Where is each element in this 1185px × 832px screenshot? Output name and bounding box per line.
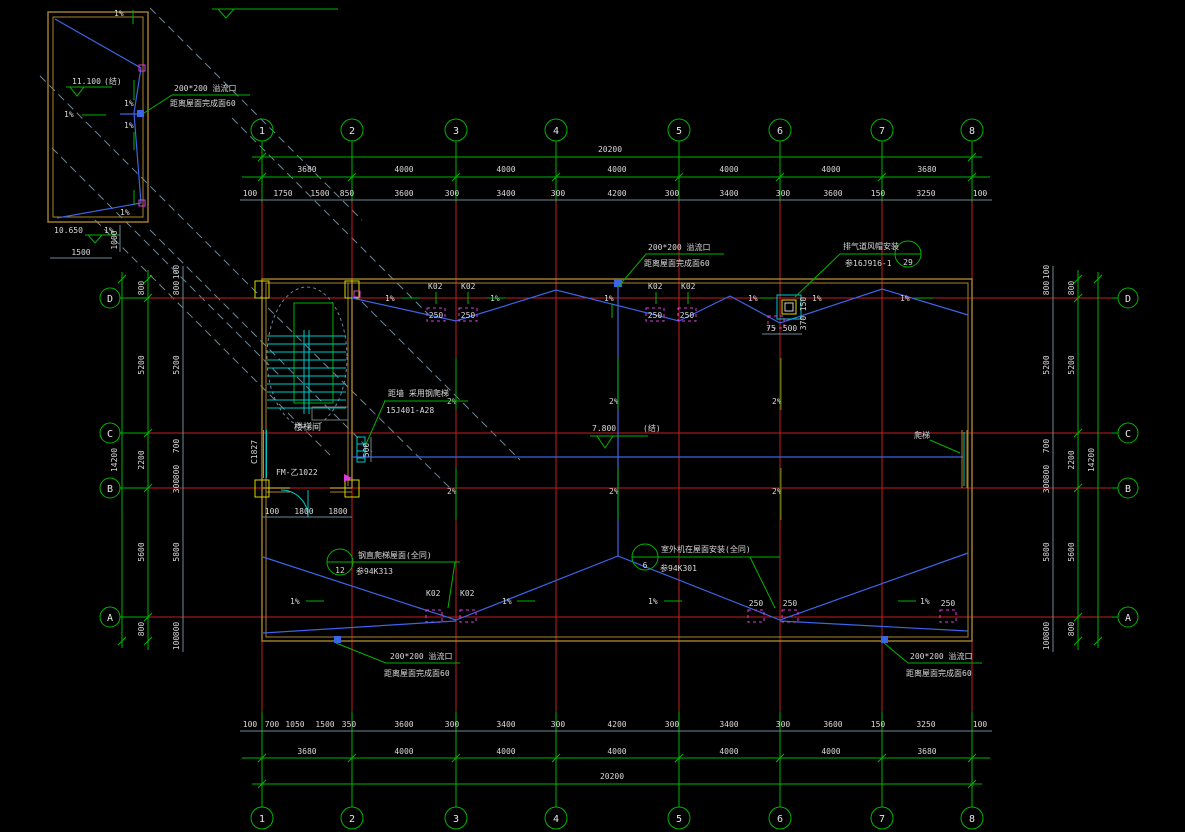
b6-note-line1: 室外机在屋面安装(全同) [661,544,751,554]
vent-dim: 75 [766,324,776,333]
slope-label: 1% [812,294,822,303]
slope-label: 1% [748,294,758,303]
vent-dim: 150 [799,297,808,312]
axis-circles-right: D C B A [1118,288,1138,627]
axis-col: 1 [259,126,265,137]
ladder-height-dim: 500 [362,443,371,458]
dim-top-overall: 20200 [598,145,622,154]
dim-right-overall: 14200 [1087,448,1096,472]
axis-col: 7 [879,814,885,825]
axis-col: 1 [259,814,265,825]
overflow-note-title: 200*200 溢流口 [390,651,453,661]
axis-col: 6 [777,814,783,825]
ladder-note-line2: 15J401-A28 [386,406,434,415]
axis-row: A [1125,613,1131,624]
drain-size: 250 [680,311,695,320]
slope-label: 1% [290,597,300,606]
elevation-marker-main: 7.800 (结) [590,423,661,448]
drain-type-label: K02 [426,589,441,598]
elevation-suffix: (结) [643,423,661,433]
axis-circles-bottom: 1 2 3 4 5 6 7 8 [251,807,983,829]
slope-label: 1% [385,294,395,303]
axis-col: 3 [453,814,459,825]
axis-row: A [107,613,113,624]
roof-plan-drawing: 1 2 3 4 5 6 7 8 1 2 3 4 5 6 7 8 D C B A … [0,0,1185,832]
axis-circles-top: 1 2 3 4 5 6 7 8 [251,119,983,141]
right-ladder: 爬梯 [914,430,967,488]
roof-outline [262,279,972,641]
overflow-note-sub: 距离屋面完成面60 [170,98,236,108]
dim-left-spans: 800520022005600800 [137,281,146,637]
detail-bubble-number: 12 [335,566,345,575]
dim-bottom-spans: 3680400040004000400040003680 [297,747,936,756]
ladder-note-line1: 距墙 采用钢爬梯 [388,388,449,398]
drain-type-label: K02 [460,589,475,598]
drain-size: 250 [783,599,798,608]
axis-col: 8 [969,126,975,137]
axis-col: 5 [676,814,682,825]
axis-col: 5 [676,126,682,137]
stair-dims: 10018001800 [265,507,348,516]
vent-note-line2: 参16J916-1 [845,258,892,268]
axis-row: C [1125,429,1131,440]
elevation-suffix: (结) [104,76,122,86]
dimensions-bottom: 1007001050150035036003003400300420030034… [240,720,992,788]
slope-label: 1% [120,208,130,217]
slope-label: 1% [900,294,910,303]
inset-detail: 1% 1% 1% 1% 1% 11.100 (结) 200*200 溢流口 距离… [48,9,338,258]
dim-right-subs: 10080052007008003005800800100 [1042,265,1051,651]
overflow-note-sub: 距离屋面完成面60 [644,258,710,268]
window-label: C1827 [250,440,259,464]
axis-row: C [107,429,113,440]
overflow-outlet [137,110,144,117]
vent-note-line1: 排气道风帽安装 [843,241,899,251]
drain-type-label: K02 [681,282,696,291]
drainage-lines [263,279,968,643]
ladder-label: 爬梯 [914,430,930,440]
slope-label: 2% [772,487,782,496]
axis-col: 6 [777,126,783,137]
overflow-note-title: 200*200 溢流口 [648,242,711,252]
drain-type-label: K02 [428,282,443,291]
axis-col: 7 [879,126,885,137]
axis-row: D [1125,294,1131,305]
exhaust-vent: 75 500 150 370 [762,295,808,334]
stair-treads [267,336,346,408]
window [264,430,267,478]
dim-right-spans: 800520022005600800 [1067,281,1076,637]
axis-col: 4 [553,126,559,137]
slope-label: 1% [114,9,124,18]
overflow-note-sub: 距离屋面完成面60 [906,668,972,678]
vent-dim: 370 [799,316,808,331]
slope-label: 2% [772,397,782,406]
slope-label: 1% [124,121,134,130]
cad-viewport: 1 2 3 4 5 6 7 8 1 2 3 4 5 6 7 8 D C B A … [0,0,1185,832]
detail-bubble-number: 6 [643,561,648,570]
axis-row: B [1125,484,1131,495]
vent-dim: 500 [783,324,798,333]
drain-type-label: K02 [461,282,476,291]
slope-label: 1% [604,294,614,303]
dim-top-subs: 1001750150085036003003400300420030034003… [243,189,988,198]
drain-size: 250 [941,599,956,608]
b6-note-line2: 参94K301 [660,563,697,573]
slope-label: 1% [124,99,134,108]
elevation-value: 10.650 [54,226,83,235]
dim-left-subs: 10080052007008003005800800100 [172,265,181,651]
drain-type-label: K02 [648,282,663,291]
overflow-note-title: 200*200 溢流口 [174,83,237,93]
overflow-note-title: 200*200 溢流口 [910,651,973,661]
dim-left-overall: 14200 [110,448,119,472]
stairwell: 楼梯间 C1827 FM-乙1022 10018001800 500 [250,279,371,517]
stairwell-label: 楼梯间 [294,421,321,433]
dimensions-right: 800520022005600800 100800520070080030058… [1042,265,1102,652]
axis-col: 4 [553,814,559,825]
detail-bubble-number: 29 [903,258,913,267]
door-label: FM-乙1022 [276,468,318,477]
slope-label: 1% [648,597,658,606]
slope-label: 2% [609,397,619,406]
slope-label: 1% [64,110,74,119]
axis-row: B [107,484,113,495]
overflow-outlet [334,636,341,643]
axis-col: 2 [349,126,355,137]
overflow-note-sub: 距离屋面完成面60 [384,668,450,678]
b12-note-line2: 参94K313 [356,566,393,576]
slope-label: 2% [609,487,619,496]
axis-row: D [107,294,113,305]
dim-bottom-overall: 20200 [600,772,624,781]
drain-size: 250 [461,311,476,320]
overflow-outlet [881,636,888,643]
dimensions-left: 800520022005600800 100800520070080030058… [110,265,183,652]
slope-label: 1% [502,597,512,606]
axis-col: 3 [453,126,459,137]
stair-rail [304,330,309,414]
slope-label: 1% [920,597,930,606]
dimensions-top: 20200 3680400040004000400040003680 10017… [240,145,992,200]
elevation-value: 7.800 [592,424,616,433]
annotations: 200*200 溢流口 距离屋面完成面60 29 排气道风帽安装 参16J916… [327,241,982,678]
drain-size: 250 [648,311,663,320]
drain-size: 250 [429,311,444,320]
b12-note-line1: 钢直爬梯屋面(全同) [358,550,432,560]
elevation-value: 11.100 [72,77,101,86]
dim-top-spans: 3680400040004000400040003680 [297,165,936,174]
inset-dim-height: 1000 [110,230,119,249]
dim-bottom-subs: 1007001050150035036003003400300420030034… [243,720,988,729]
axis-col: 8 [969,814,975,825]
slope-label: 2% [447,487,457,496]
drain-size: 250 [749,599,764,608]
inset-dim-width: 1500 [71,248,90,257]
axis-col: 2 [349,814,355,825]
